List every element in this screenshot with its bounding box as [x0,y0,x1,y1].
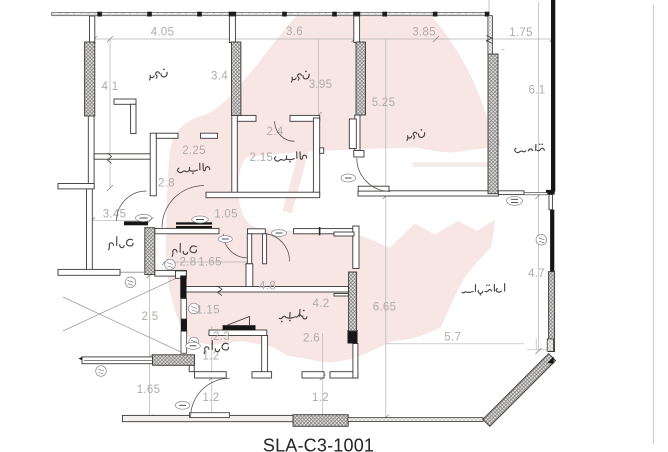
svg-text:6.1: 6.1 [529,85,546,97]
svg-text:1.2: 1.2 [312,392,329,404]
svg-text:3.45: 3.45 [103,209,127,221]
svg-text:4.7: 4.7 [528,268,545,280]
svg-text:2.3: 2.3 [213,331,230,343]
svg-text:5.7: 5.7 [444,332,461,344]
svg-text:3.4: 3.4 [211,71,228,83]
svg-text:2.6: 2.6 [303,332,320,344]
svg-text:1.75: 1.75 [509,27,533,39]
svg-text:4.2: 4.2 [313,298,330,310]
svg-text:1.2: 1.2 [203,392,220,404]
svg-text:5.25: 5.25 [372,97,396,109]
svg-text:3.6: 3.6 [286,26,303,38]
svg-text:1.65: 1.65 [198,256,222,268]
svg-text:1.05: 1.05 [214,209,238,221]
svg-text:1.15: 1.15 [196,305,220,317]
svg-text:SLA-C3-1001: SLA-C3-1001 [263,436,374,452]
svg-text:4.1: 4.1 [102,81,119,93]
svg-text:2.8: 2.8 [158,178,175,190]
svg-text:2.8: 2.8 [180,256,197,268]
svg-text:3.95: 3.95 [309,79,333,91]
svg-text:3.85: 3.85 [412,27,436,39]
svg-text:2.5: 2.5 [142,311,159,323]
svg-text:1.65: 1.65 [137,384,161,396]
svg-text:4.05: 4.05 [151,27,175,39]
svg-text:2.15: 2.15 [250,152,274,164]
svg-text:4.8: 4.8 [259,281,276,293]
svg-text:2.25: 2.25 [182,145,206,157]
svg-text:6.65: 6.65 [373,302,397,314]
